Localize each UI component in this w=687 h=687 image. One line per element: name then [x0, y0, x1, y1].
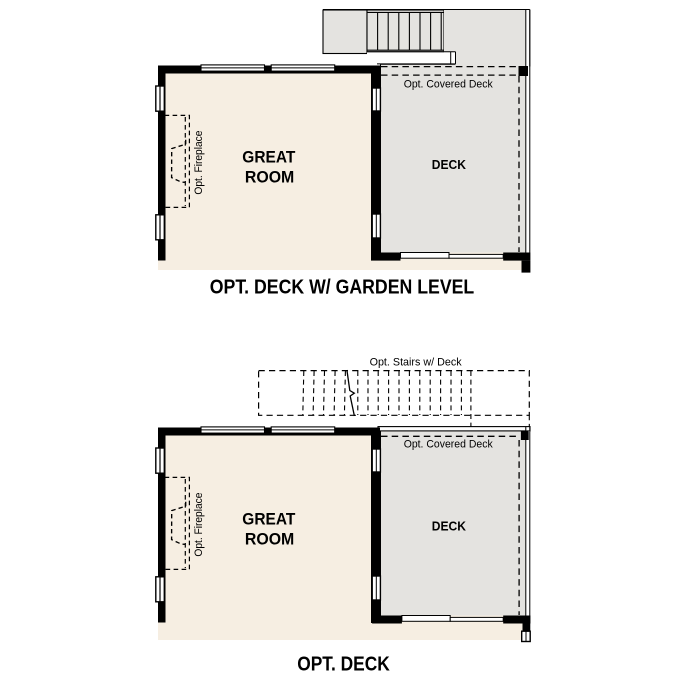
svg-text:DECK: DECK [432, 157, 467, 172]
svg-text:ROOM: ROOM [245, 169, 294, 187]
svg-text:GREAT: GREAT [242, 510, 295, 528]
svg-text:Opt. Fireplace: Opt. Fireplace [193, 131, 205, 195]
svg-text:Opt. Stairs w/ Deck: Opt. Stairs w/ Deck [370, 357, 462, 369]
svg-text:GREAT: GREAT [242, 148, 295, 166]
svg-text:DECK: DECK [432, 518, 467, 533]
svg-text:OPT. DECK: OPT. DECK [297, 652, 390, 675]
svg-text:OPT. DECK W/ GARDEN LEVEL: OPT. DECK W/ GARDEN LEVEL [210, 275, 475, 298]
svg-text:ROOM: ROOM [245, 531, 294, 549]
svg-text:Opt. Covered Deck: Opt. Covered Deck [404, 79, 493, 91]
svg-text:Opt. Fireplace: Opt. Fireplace [193, 493, 205, 557]
svg-text:Opt. Covered Deck: Opt. Covered Deck [404, 438, 493, 450]
